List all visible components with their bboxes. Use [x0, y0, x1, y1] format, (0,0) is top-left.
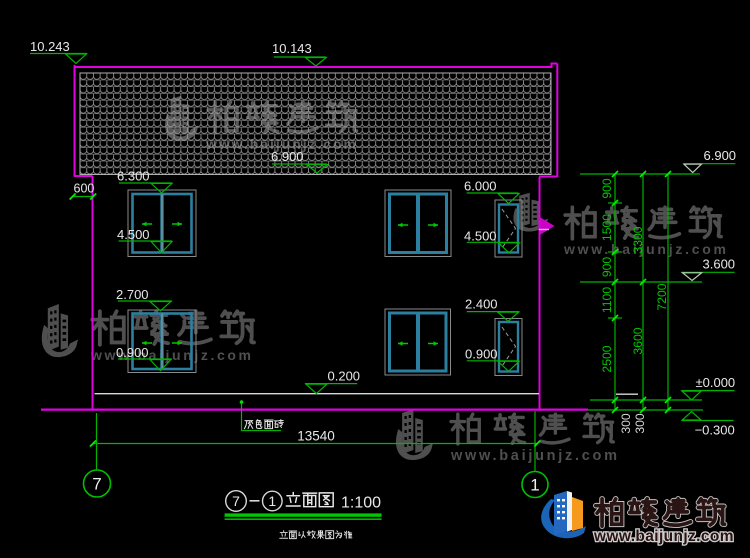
svg-text:900: 900 [600, 178, 614, 199]
svg-text:0.900: 0.900 [465, 347, 498, 362]
svg-text:7200: 7200 [655, 283, 669, 310]
svg-text:www.baijunjz.com: www.baijunjz.com [563, 241, 728, 257]
svg-text:10.243: 10.243 [30, 39, 70, 54]
svg-text:0.900: 0.900 [116, 345, 149, 360]
svg-text:3600: 3600 [631, 327, 645, 354]
svg-text:7: 7 [92, 475, 101, 494]
svg-text:600: 600 [74, 182, 95, 196]
svg-text:1500: 1500 [600, 214, 614, 241]
svg-text:3.600: 3.600 [703, 257, 736, 272]
svg-text:2500: 2500 [600, 345, 614, 372]
svg-text:1:100: 1:100 [341, 495, 381, 512]
svg-text:13540: 13540 [297, 429, 335, 444]
svg-text:6.300: 6.300 [117, 169, 150, 184]
svg-text:6.000: 6.000 [464, 179, 497, 194]
svg-text:1: 1 [268, 493, 276, 509]
svg-text:±0.000: ±0.000 [696, 375, 736, 390]
svg-text:0.200: 0.200 [328, 369, 361, 384]
svg-text:3300: 3300 [631, 226, 645, 253]
svg-text:www.baijunjz.com: www.baijunjz.com [593, 528, 734, 545]
svg-text:2.700: 2.700 [116, 287, 149, 302]
svg-text:6.900: 6.900 [271, 149, 304, 164]
svg-text:300: 300 [633, 413, 647, 434]
svg-text:www.baijunjz.com: www.baijunjz.com [90, 347, 253, 363]
svg-text:7: 7 [232, 493, 240, 509]
svg-text:6.900: 6.900 [704, 148, 737, 163]
svg-text:1: 1 [530, 476, 539, 495]
svg-text:−0.300: −0.300 [695, 423, 735, 438]
svg-text:300: 300 [619, 413, 633, 434]
svg-text:4.500: 4.500 [464, 228, 497, 243]
svg-text:2.400: 2.400 [465, 297, 498, 312]
svg-text:900: 900 [600, 257, 614, 278]
svg-text:1100: 1100 [600, 287, 614, 313]
svg-text:10.143: 10.143 [272, 41, 312, 56]
svg-text:4.500: 4.500 [117, 227, 150, 242]
